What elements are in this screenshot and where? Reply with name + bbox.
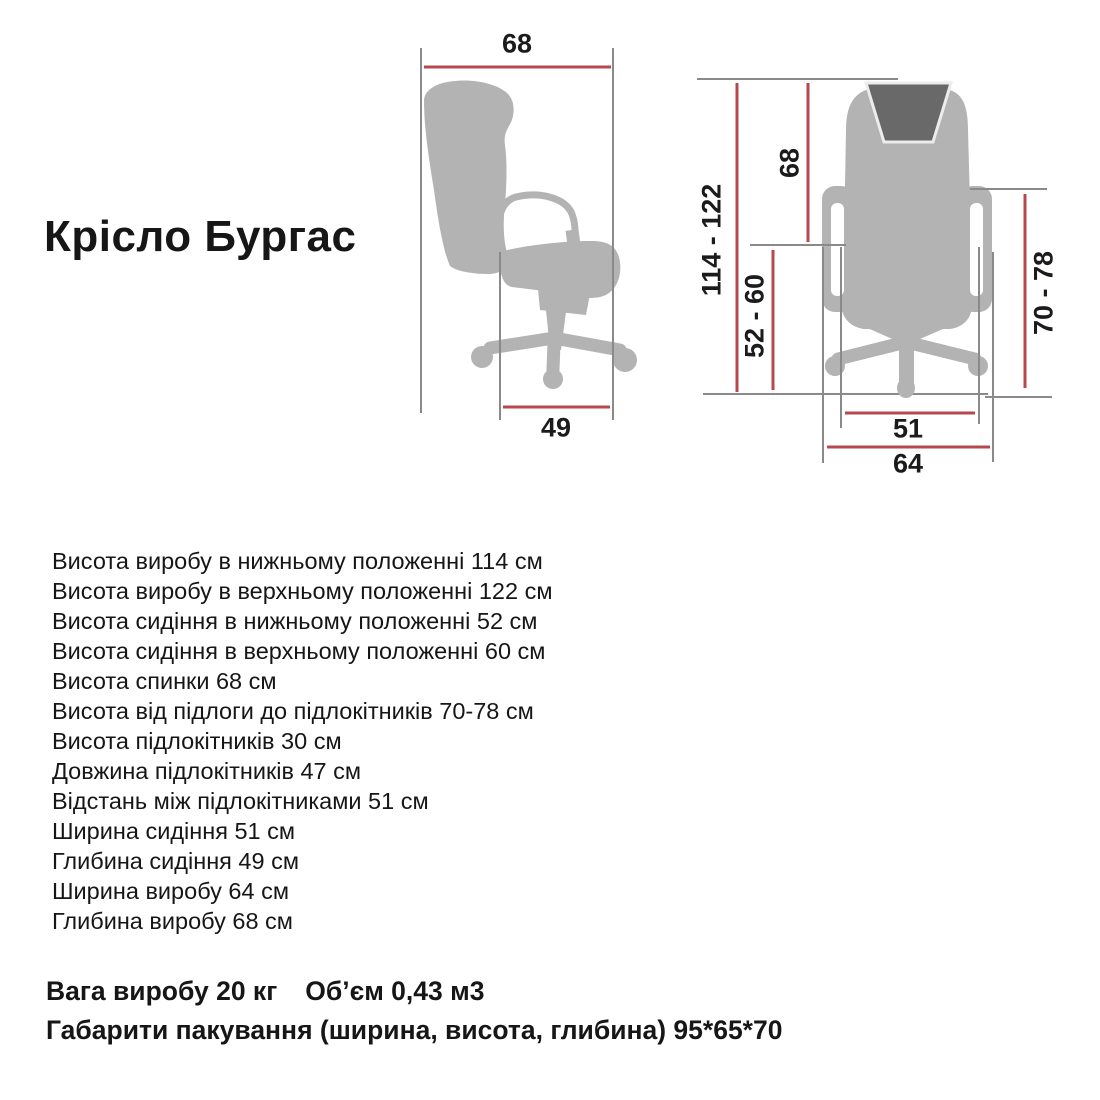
front-back-height-label: 68 — [775, 148, 806, 178]
spec-line: Висота сидіння в нижньому положенні 52 с… — [52, 606, 553, 636]
spec-line: Висота від підлоги до підлокітників 70-7… — [52, 696, 553, 726]
spec-line: Ширина сидіння 51 см — [52, 816, 553, 846]
spec-line: Глибина виробу 68 см — [52, 906, 553, 936]
weight-value: Вага виробу 20 кг — [46, 976, 277, 1006]
spec-line: Довжина підлокітників 47 см — [52, 756, 553, 786]
spec-line: Висота виробу в верхньому положенні 122 … — [52, 576, 553, 606]
side-depth-label: 68 — [502, 29, 532, 60]
spec-line: Глибина сидіння 49 см — [52, 846, 553, 876]
spec-line: Ширина виробу 64 см — [52, 876, 553, 906]
packaging-value: Габарити пакування (ширина, висота, глиб… — [46, 1011, 782, 1050]
chair-front-silhouette — [822, 83, 992, 398]
front-product-height-label: 114 - 122 — [697, 184, 728, 297]
spec-line: Висота спинки 68 см — [52, 666, 553, 696]
floor-line — [703, 394, 1052, 397]
product-sheet: Крісло Бургас — [0, 0, 1100, 1100]
spec-line: Висота підлокітників 30 см — [52, 726, 553, 756]
front-seat-height-label: 52 - 60 — [740, 274, 771, 358]
front-armrest-height-label: 70 - 78 — [1029, 251, 1060, 335]
spec-line: Висота виробу в нижньому положенні 114 с… — [52, 546, 553, 576]
spec-list: Висота виробу в нижньому положенні 114 с… — [52, 546, 553, 936]
side-seat-depth-label: 49 — [541, 413, 571, 444]
chair-side-silhouette — [424, 81, 637, 389]
spec-line: Відстань між підлокітниками 51 см — [52, 786, 553, 816]
front-seat-width-label: 51 — [893, 414, 923, 445]
front-product-width-label: 64 — [893, 449, 923, 480]
spec-line: Висота сидіння в верхньому положенні 60 … — [52, 636, 553, 666]
footer-summary: Вага виробу 20 кгОб’єм 0,43 м3 Габарити … — [46, 972, 782, 1050]
volume-value: Об’єм 0,43 м3 — [305, 976, 484, 1006]
